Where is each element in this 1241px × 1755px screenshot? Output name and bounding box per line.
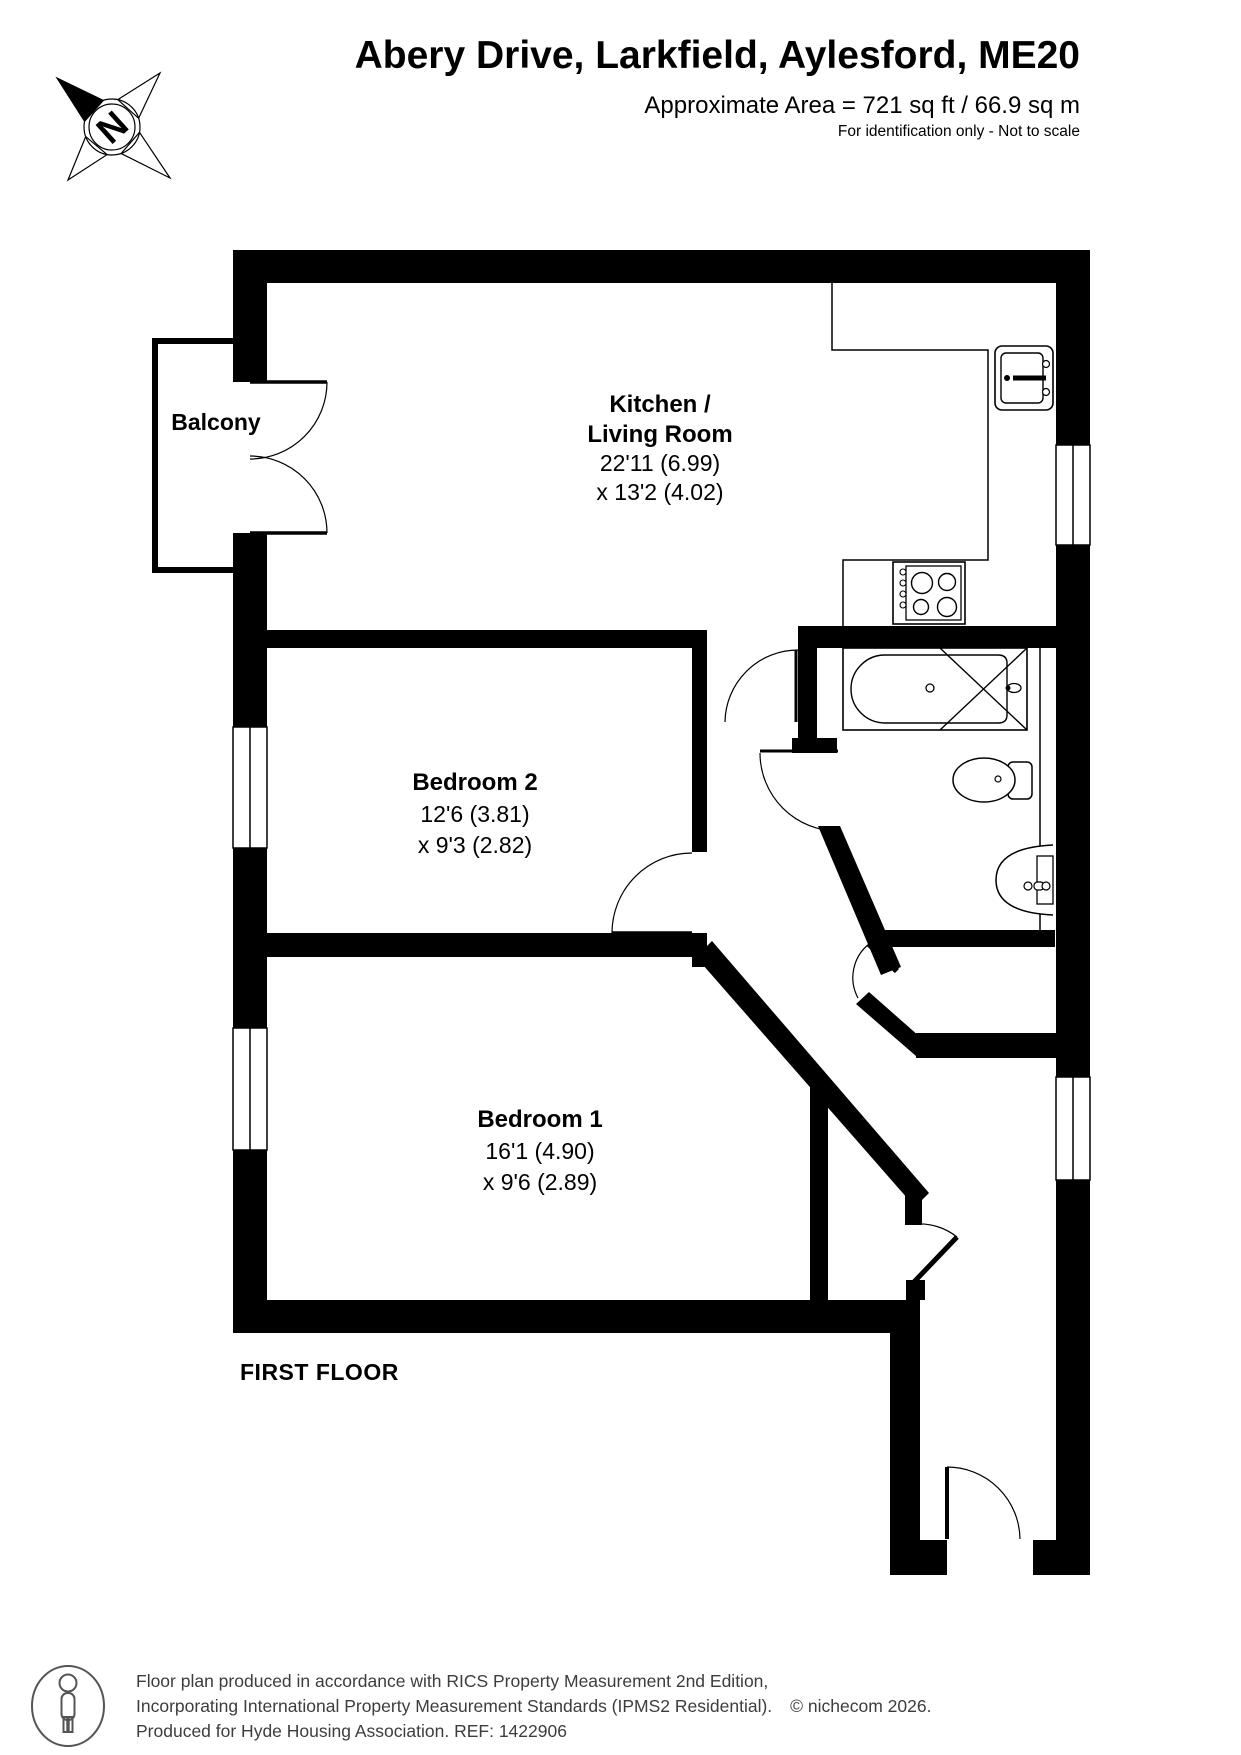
landing-window — [1056, 1077, 1090, 1180]
footer: Floor plan produced in accordance with R… — [28, 1664, 931, 1748]
balcony-label: Balcony — [171, 409, 261, 435]
bedroom2-dim-2: x 9'3 (2.82) — [418, 832, 532, 858]
bedroom1-dim-1: 16'1 (4.90) — [485, 1138, 594, 1164]
hob-icon — [893, 562, 965, 624]
footer-copyright: © nichecom 2026. — [790, 1696, 931, 1716]
floor-label: FIRST FLOOR — [240, 1359, 399, 1385]
bedroom2-door — [612, 853, 692, 933]
footer-text: Floor plan produced in accordance with R… — [136, 1669, 931, 1744]
toilet-icon — [953, 758, 1032, 802]
bedroom2-name: Bedroom 2 — [412, 769, 537, 796]
bathtub-icon — [843, 648, 1027, 730]
footer-line-1: Floor plan produced in accordance with R… — [136, 1669, 931, 1694]
kitchen-living-name-1: Kitchen / — [609, 391, 711, 418]
balcony-french-doors — [250, 382, 327, 533]
bedroom1-door — [913, 1224, 957, 1283]
balcony-walls — [152, 338, 233, 573]
floorplan-page: Abery Drive, Larkfield, Aylesford, ME20 … — [0, 0, 1241, 1755]
bedroom2-dim-1: 12'6 (3.81) — [420, 801, 529, 827]
kitchen-sink-icon — [995, 346, 1053, 410]
bedroom2-window — [233, 727, 267, 848]
compass-icon: N — [57, 73, 170, 180]
footer-line-2: Incorporating International Property Mea… — [136, 1694, 931, 1719]
person-logo-icon — [28, 1664, 108, 1748]
kitchen-living-dim-1: 22'11 (6.99) — [600, 450, 720, 476]
floorplan-drawing: N — [0, 0, 1241, 1755]
hallway-door — [725, 650, 798, 722]
windows — [233, 445, 1090, 1180]
kitchen-window — [1056, 445, 1090, 545]
kitchen-living-dim-2: x 13'2 (4.02) — [596, 479, 723, 505]
bathroom-door — [760, 751, 838, 831]
basin-icon — [996, 845, 1053, 915]
footer-line-3: Produced for Hyde Housing Association. R… — [136, 1719, 931, 1744]
bedroom1-window — [233, 1028, 267, 1150]
bedroom1-name: Bedroom 1 — [477, 1106, 602, 1133]
kitchen-living-name-2: Living Room — [587, 421, 732, 448]
footer-standards: Incorporating International Property Mea… — [136, 1696, 772, 1716]
corridor-door — [947, 1467, 1020, 1539]
bedroom1-dim-2: x 9'6 (2.89) — [483, 1169, 597, 1195]
